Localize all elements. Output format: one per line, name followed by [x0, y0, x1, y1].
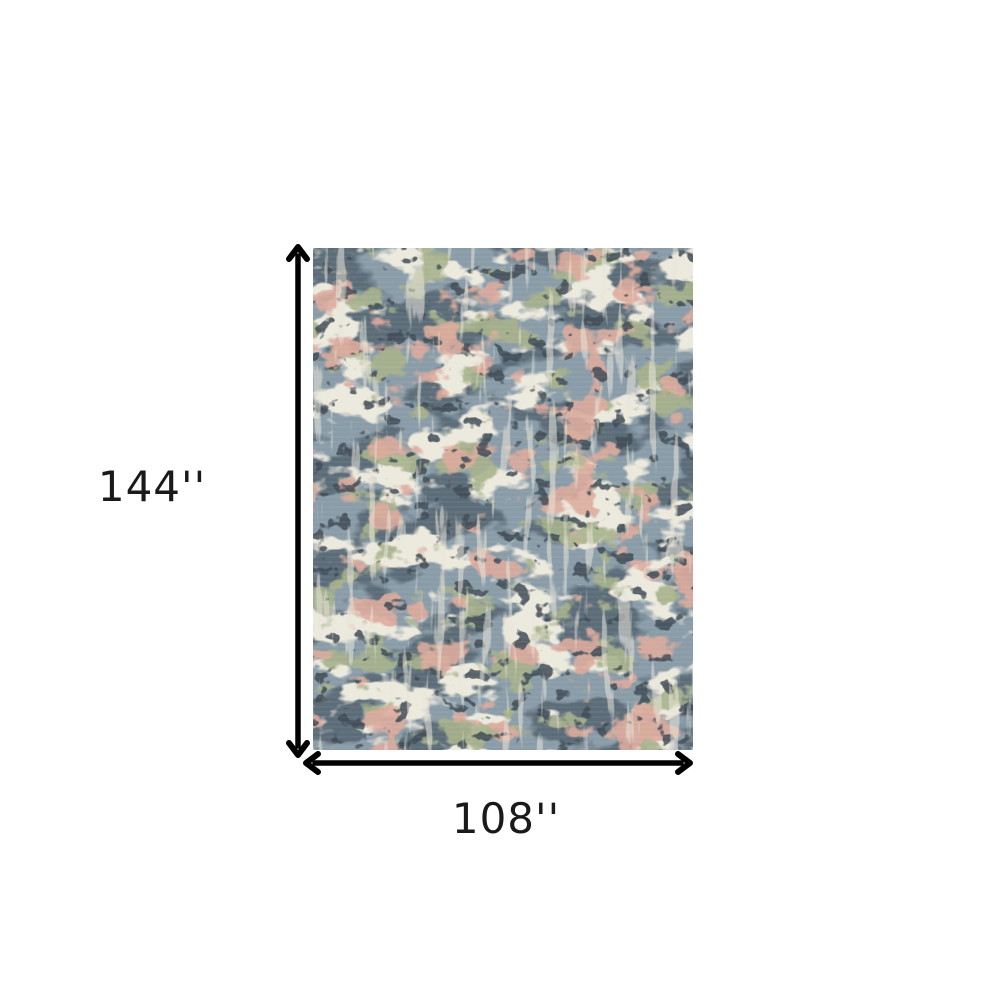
vertical-dimension-arrow [284, 242, 312, 760]
width-dimension-label: 108'' [416, 794, 596, 843]
height-dimension-label: 144'' [62, 462, 242, 511]
rug-light-streak-layer [313, 248, 693, 750]
horizontal-dimension-arrow [301, 749, 695, 777]
rug-image [313, 248, 693, 750]
rug-dimension-diagram: 144'' 108'' [0, 0, 1000, 1000]
